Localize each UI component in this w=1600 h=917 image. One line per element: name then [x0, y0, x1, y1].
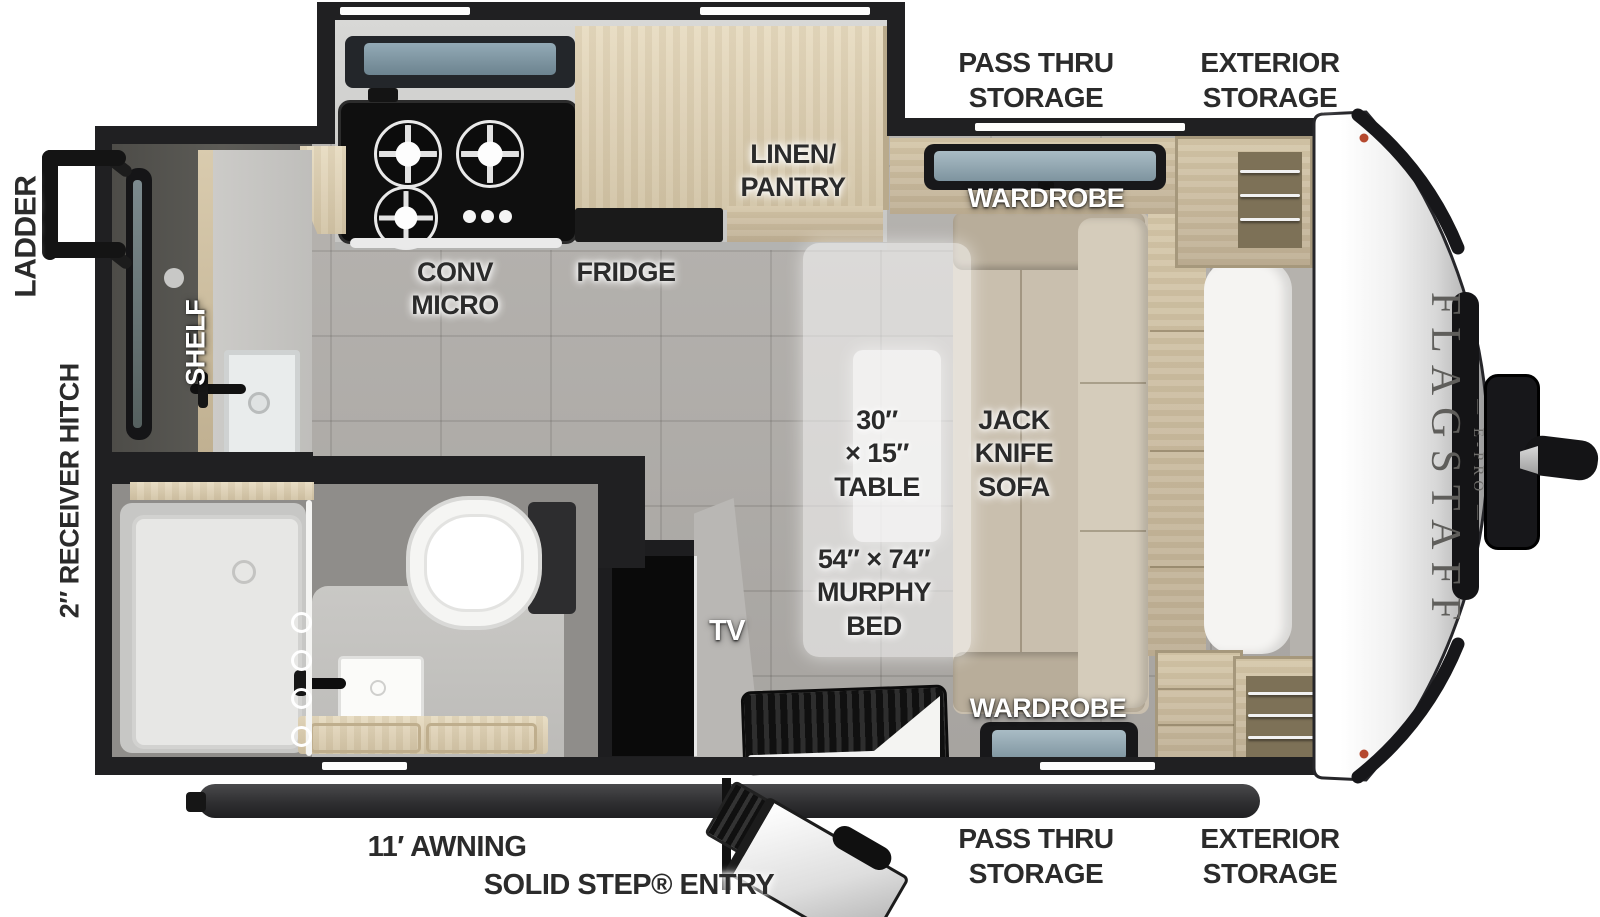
stove-base-plate [350, 238, 562, 248]
awning-bracket-left [186, 792, 206, 812]
rear-wall-window-glass [133, 180, 142, 428]
bottom-window-glass [992, 730, 1126, 760]
label-shelf: SHELF [179, 278, 212, 408]
curtain-ring-3 [291, 688, 312, 709]
wire-shelf-t2 [1240, 194, 1300, 197]
wall-rear [95, 126, 112, 775]
stove-knob-1 [463, 210, 476, 223]
wire-shelf-t3 [1240, 218, 1300, 221]
bathtub-drain [232, 560, 256, 584]
stove-knob-3 [499, 210, 512, 223]
bed-platform-seam2 [1150, 450, 1204, 452]
bottom-slot-1 [322, 762, 407, 770]
curtain-ring-4 [291, 726, 312, 747]
brand-model: — E-PRO — [1469, 272, 1486, 652]
bathroom-right-wall [598, 456, 645, 568]
label-conv-micro: CONV MICRO [385, 256, 525, 323]
bathroom-top-wall [95, 456, 645, 484]
label-fridge: FRIDGE [556, 256, 696, 289]
bed-platform [1148, 214, 1206, 656]
front-drawers-bottom [1155, 650, 1243, 766]
pantry-base-drawer [727, 206, 883, 242]
label-receiver-hitch: 2″ RECEIVER HITCH [53, 326, 86, 656]
tv-screen [612, 556, 697, 756]
vanity-sink-drain [370, 680, 386, 696]
top-slot-2 [700, 7, 870, 15]
fridge-front [575, 208, 723, 242]
label-linen-pantry: LINEN/ PANTRY [723, 138, 863, 205]
label-table: 30″ × 15″ TABLE [807, 404, 947, 504]
stove-knob-2 [481, 210, 494, 223]
brand-name: FLAGSTAFF [1421, 272, 1469, 652]
bumpout-left-wall [317, 2, 335, 144]
sofa-back-cushion [1078, 218, 1148, 708]
ladder-rung-1 [42, 150, 126, 166]
label-pass-thru-storage-bottom: PASS THRU STORAGE [946, 822, 1126, 891]
label-wardrobe-top: WARDROBE [946, 182, 1146, 215]
label-murphy-bed: 54″ × 74″ MURPHY BED [774, 543, 974, 643]
sofa-seam-h1 [1080, 382, 1146, 384]
curtain-ring-2 [291, 650, 312, 671]
vanity-tray-slot-2 [426, 723, 537, 753]
range-hood-glass [364, 43, 556, 75]
toilet-lid [424, 514, 524, 612]
bathtub-inner [132, 515, 302, 749]
bed-platform-seam3 [1150, 566, 1204, 568]
label-solid-step-entry: SOLID STEP® ENTRY [469, 868, 789, 904]
sofa-seam-h2 [1080, 530, 1146, 532]
curtain-ring-1 [291, 612, 312, 633]
vanity-tray-slot-1 [310, 723, 421, 753]
label-wardrobe-bottom: WARDROBE [948, 692, 1148, 725]
label-exterior-storage-top: EXTERIOR STORAGE [1180, 46, 1360, 115]
rear-shelf-strip [130, 482, 314, 500]
stove-burner-1 [374, 120, 442, 188]
drawer-seam2 [1158, 724, 1234, 726]
wall-top-left [95, 126, 335, 144]
range-hood-lamp [368, 88, 398, 102]
label-awning: 11′ AWNING [347, 830, 547, 866]
bumpout-right-wall [887, 2, 905, 136]
label-exterior-storage-bottom: EXTERIOR STORAGE [1180, 822, 1360, 891]
top-slot-1 [340, 7, 470, 15]
rv-floorplan-diagram: — E-PRO — FLAGSTAFF PASS THRU STORAGE EX… [0, 0, 1600, 917]
label-jack-knife-sofa: JACK KNIFE SOFA [944, 404, 1084, 504]
bottom-slot-2 [1040, 762, 1155, 770]
brand-block: — E-PRO — FLAGSTAFF [1410, 272, 1486, 652]
top-window-glass [934, 151, 1156, 181]
cap-marker-light-bottom [1360, 750, 1369, 759]
ladder-rung-2 [42, 242, 126, 258]
wire-shelf-t1 [1240, 170, 1300, 173]
front-storage-top-opening [1238, 152, 1302, 248]
cap-marker-light-top [1360, 134, 1369, 143]
label-ladder: LADDER [7, 127, 44, 347]
top-slot-main [975, 123, 1185, 131]
rear-sink-drain [248, 392, 270, 414]
bed-platform-seam1 [1150, 330, 1204, 332]
stove-burner-2 [456, 120, 524, 188]
label-pass-thru-storage-top: PASS THRU STORAGE [946, 46, 1126, 115]
folded-mattress [1204, 260, 1292, 654]
label-tv: TV [687, 614, 767, 650]
drawer-seam1 [1158, 688, 1234, 690]
